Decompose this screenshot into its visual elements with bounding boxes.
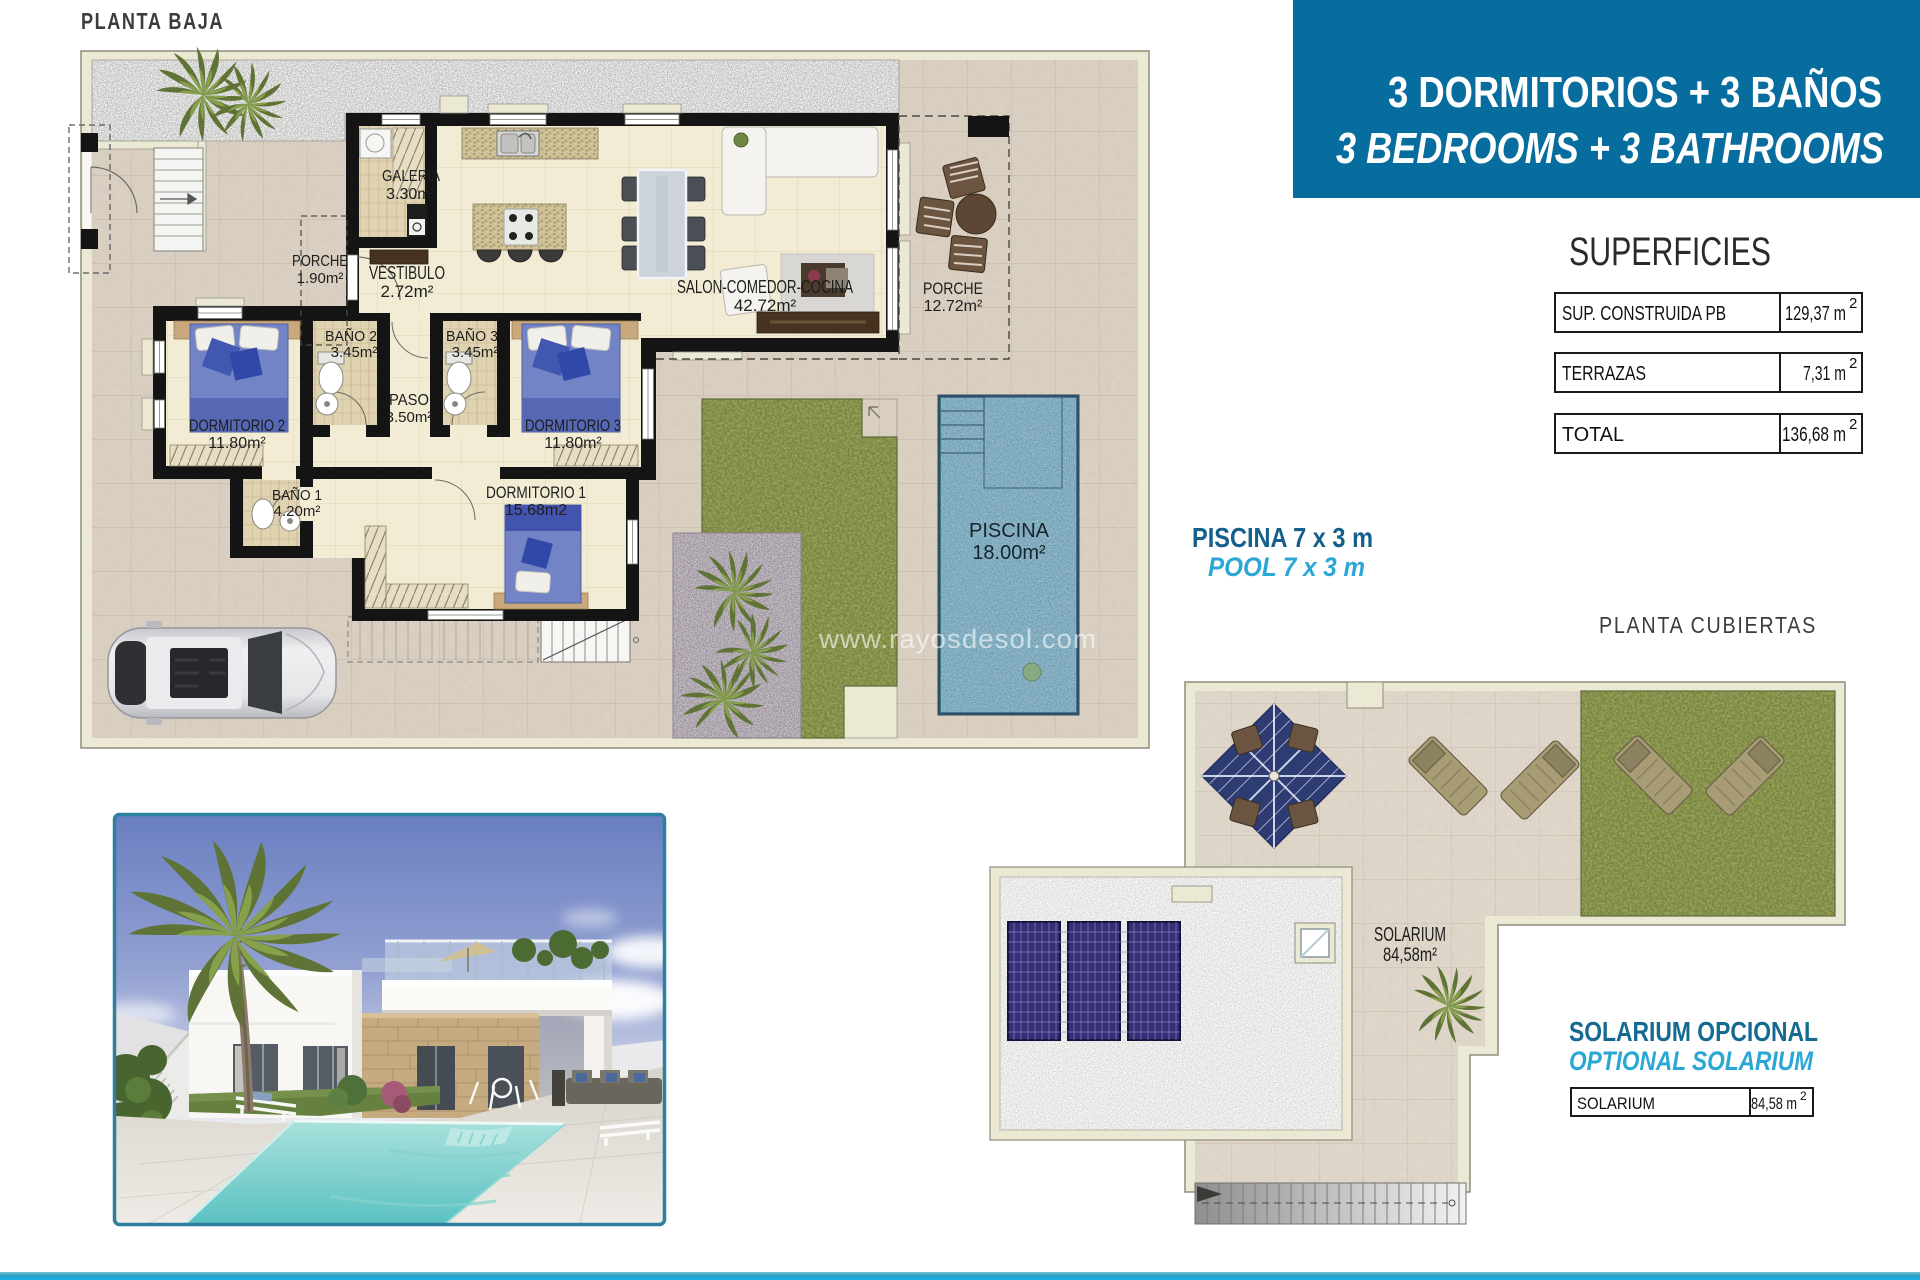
svg-text:18.00m²: 18.00m² <box>972 542 1046 564</box>
svg-text:42.72m²: 42.72m² <box>734 296 797 315</box>
svg-text:136,68 m: 136,68 m <box>1782 424 1846 446</box>
svg-text:PLANTA CUBIERTAS: PLANTA CUBIERTAS <box>1599 612 1817 638</box>
svg-text:84,58 m: 84,58 m <box>1751 1094 1797 1113</box>
svg-text:1.90m²: 1.90m² <box>297 270 344 287</box>
svg-text:GALERIA: GALERIA <box>382 168 440 185</box>
svg-text:PISCINA: PISCINA <box>969 520 1050 542</box>
svg-text:11.80m²: 11.80m² <box>544 435 602 452</box>
svg-text:3.45m²: 3.45m² <box>331 344 378 361</box>
svg-text:11.80m²: 11.80m² <box>208 435 266 452</box>
svg-text:PORCHE: PORCHE <box>292 253 348 270</box>
svg-text:SOLARIUM: SOLARIUM <box>1374 924 1446 946</box>
svg-text:PISCINA 7 x 3 m: PISCINA 7 x 3 m <box>1192 522 1373 553</box>
svg-text:POOL 7 x 3 m: POOL 7 x 3 m <box>1208 552 1365 582</box>
svg-text:SOLARIUM OPCIONAL: SOLARIUM OPCIONAL <box>1569 1016 1818 1047</box>
svg-text:www.rayosdesol.com: www.rayosdesol.com <box>818 624 1097 654</box>
svg-text:12.72m²: 12.72m² <box>924 298 983 315</box>
svg-text:84,58m²: 84,58m² <box>1383 945 1437 966</box>
svg-text:VESTIBULO: VESTIBULO <box>369 263 445 283</box>
svg-text:TERRAZAS: TERRAZAS <box>1562 363 1646 385</box>
svg-text:2.72m²: 2.72m² <box>381 282 434 301</box>
svg-text:PORCHE: PORCHE <box>923 279 983 298</box>
svg-text:2: 2 <box>1849 355 1857 372</box>
svg-text:BAÑO 1: BAÑO 1 <box>272 487 322 504</box>
svg-text:BAÑO 2: BAÑO 2 <box>325 328 377 345</box>
svg-text:129,37 m: 129,37 m <box>1785 303 1846 325</box>
svg-text:SUP. CONSTRUIDA PB: SUP. CONSTRUIDA PB <box>1562 303 1726 325</box>
svg-text:3 BEDROOMS + 3 BATHROOMS: 3 BEDROOMS + 3 BATHROOMS <box>1336 124 1884 173</box>
svg-text:PLANTA BAJA: PLANTA BAJA <box>81 8 224 34</box>
svg-text:SUPERFICIES: SUPERFICIES <box>1569 230 1771 274</box>
svg-text:BAÑO 3: BAÑO 3 <box>446 328 498 345</box>
svg-text:3.50m²: 3.50m² <box>386 409 433 426</box>
svg-text:OPTIONAL SOLARIUM: OPTIONAL SOLARIUM <box>1569 1046 1813 1076</box>
svg-text:DORMITORIO 3: DORMITORIO 3 <box>525 416 621 435</box>
svg-text:PASO: PASO <box>389 392 429 409</box>
svg-text:2: 2 <box>1849 416 1857 433</box>
svg-text:3.30m²: 3.30m² <box>386 186 436 203</box>
svg-text:3.45m²: 3.45m² <box>452 344 499 361</box>
svg-text:15.68m2: 15.68m2 <box>505 502 567 519</box>
svg-text:2: 2 <box>1849 295 1857 312</box>
svg-text:SOLARIUM: SOLARIUM <box>1577 1094 1655 1113</box>
svg-text:DORMITORIO 1: DORMITORIO 1 <box>486 483 586 502</box>
svg-text:4.20m²: 4.20m² <box>274 503 321 520</box>
svg-text:3 DORMITORIOS + 3 BAÑOS: 3 DORMITORIOS + 3 BAÑOS <box>1388 67 1882 117</box>
svg-text:TOTAL: TOTAL <box>1562 424 1624 446</box>
svg-text:DORMITORIO 2: DORMITORIO 2 <box>189 416 285 435</box>
svg-text:SALON-COMEDOR-COCINA: SALON-COMEDOR-COCINA <box>677 277 853 297</box>
svg-text:7,31 m: 7,31 m <box>1803 363 1846 385</box>
svg-text:2: 2 <box>1800 1089 1807 1103</box>
